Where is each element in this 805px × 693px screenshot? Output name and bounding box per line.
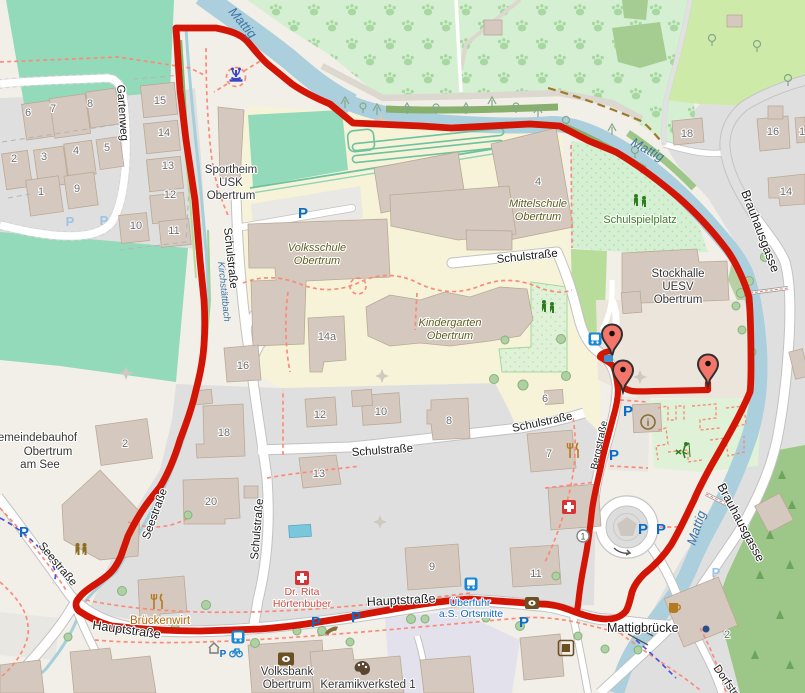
svg-text:2: 2 (724, 629, 730, 641)
svg-text:Sportheim: Sportheim (205, 164, 257, 176)
svg-text:Stockhalle: Stockhalle (651, 268, 704, 280)
svg-text:P: P (712, 565, 721, 580)
svg-text:Keramikverksted 1: Keramikverksted 1 (320, 679, 415, 691)
svg-text:8: 8 (446, 415, 452, 427)
svg-text:18: 18 (218, 427, 230, 439)
svg-text:Hörtenbuber: Hörtenbuber (273, 598, 332, 610)
svg-text:Mittelschule: Mittelschule (509, 198, 567, 210)
svg-text:2: 2 (11, 153, 17, 165)
svg-text:15: 15 (154, 95, 166, 107)
svg-text:11: 11 (168, 225, 179, 237)
svg-text:Volksbank: Volksbank (261, 666, 314, 678)
svg-text:a.S. Ortsmitte: a.S. Ortsmitte (439, 608, 503, 620)
svg-text:1: 1 (38, 186, 44, 198)
svg-text:16: 16 (237, 360, 249, 372)
svg-text:P: P (656, 521, 666, 538)
svg-text:20: 20 (205, 496, 217, 508)
svg-text:8: 8 (87, 98, 93, 110)
svg-text:UESV: UESV (662, 281, 694, 293)
svg-text:1: 1 (580, 532, 585, 542)
svg-text:P: P (311, 614, 321, 631)
svg-text:6: 6 (542, 393, 548, 405)
svg-text:P: P (100, 213, 109, 228)
svg-text:10: 10 (130, 220, 142, 232)
svg-text:Mattigbrücke: Mattigbrücke (607, 621, 679, 635)
svg-text:Obertrum: Obertrum (207, 190, 256, 202)
svg-text:7: 7 (546, 448, 552, 460)
svg-text:P: P (623, 403, 633, 420)
svg-text:6: 6 (25, 107, 31, 119)
svg-text:5: 5 (104, 142, 110, 154)
svg-text:Obertrum: Obertrum (427, 330, 473, 342)
svg-text:12: 12 (314, 409, 326, 421)
svg-text:Obertrum: Obertrum (654, 294, 703, 306)
svg-text:P: P (19, 524, 29, 541)
svg-text:10: 10 (375, 406, 387, 418)
svg-text:Obertrum: Obertrum (24, 446, 73, 458)
svg-text:Schulspielplatz: Schulspielplatz (603, 214, 676, 226)
svg-text:9: 9 (74, 183, 80, 195)
svg-text:3: 3 (41, 151, 47, 163)
svg-text:Obertrum: Obertrum (515, 211, 561, 223)
svg-text:12: 12 (164, 189, 176, 201)
svg-text:Volksschule: Volksschule (288, 242, 346, 254)
svg-text:7: 7 (50, 103, 56, 115)
svg-text:P: P (351, 609, 361, 626)
svg-text:14a: 14a (318, 331, 337, 343)
svg-text:P: P (638, 521, 648, 538)
svg-text:4: 4 (73, 145, 79, 157)
svg-text:11: 11 (530, 568, 541, 580)
svg-text:14: 14 (158, 127, 170, 139)
svg-text:am See: am See (20, 459, 60, 471)
svg-text:4: 4 (535, 176, 541, 188)
svg-text:Obertrum: Obertrum (263, 679, 312, 691)
svg-text:P: P (66, 214, 75, 229)
svg-text:1: 1 (799, 126, 805, 138)
svg-text:P: P (609, 447, 619, 464)
svg-text:P: P (220, 649, 227, 660)
svg-text:16: 16 (767, 126, 779, 138)
svg-text:Obertrum: Obertrum (294, 255, 340, 267)
svg-text:Dr. Rita: Dr. Rita (284, 586, 319, 598)
svg-text:18: 18 (681, 128, 693, 140)
svg-text:9: 9 (429, 561, 435, 573)
svg-text:Kindergarten: Kindergarten (419, 317, 482, 329)
svg-text:14: 14 (780, 186, 792, 198)
svg-text:i: i (647, 418, 650, 429)
svg-text:13: 13 (313, 468, 325, 480)
svg-text:Gemeindebauhof: Gemeindebauhof (0, 432, 78, 444)
svg-text:P: P (298, 205, 308, 222)
svg-text:Brückenwirt: Brückenwirt (130, 615, 191, 627)
svg-text:13: 13 (162, 160, 174, 172)
svg-text:P: P (519, 614, 529, 631)
svg-text:USK: USK (219, 177, 243, 189)
svg-text:2: 2 (122, 438, 128, 450)
